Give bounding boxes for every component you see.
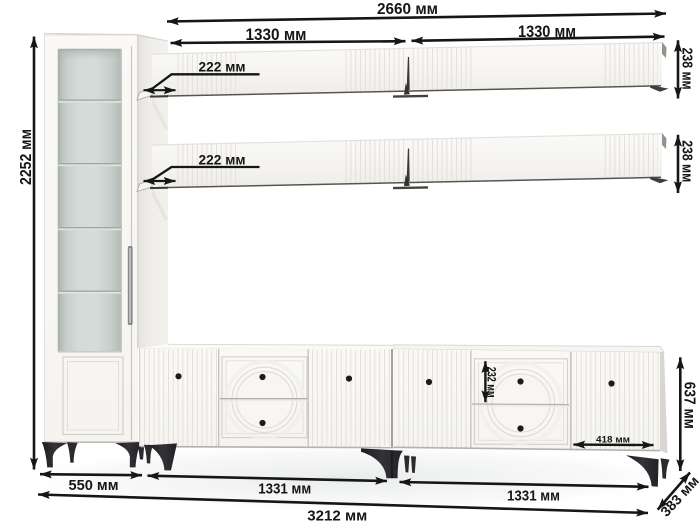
svg-text:3212 мм: 3212 мм (307, 507, 367, 524)
svg-text:637 мм: 637 мм (681, 382, 698, 429)
svg-text:2252 мм: 2252 мм (18, 129, 35, 185)
svg-text:2660 мм: 2660 мм (377, 1, 438, 18)
svg-text:1330 мм: 1330 мм (518, 23, 576, 41)
svg-text:222 мм: 222 мм (199, 59, 246, 74)
svg-text:238 мм: 238 мм (679, 48, 695, 90)
svg-text:222 мм: 222 мм (199, 152, 246, 167)
svg-text:1331 мм: 1331 мм (507, 488, 560, 505)
svg-text:418 мм: 418 мм (596, 435, 630, 446)
svg-text:238 мм: 238 мм (679, 140, 695, 182)
svg-text:1331 мм: 1331 мм (258, 481, 311, 498)
svg-text:232 мм: 232 мм (485, 367, 499, 398)
svg-text:1330 мм: 1330 мм (246, 26, 307, 44)
svg-text:550 мм: 550 мм (69, 477, 119, 494)
